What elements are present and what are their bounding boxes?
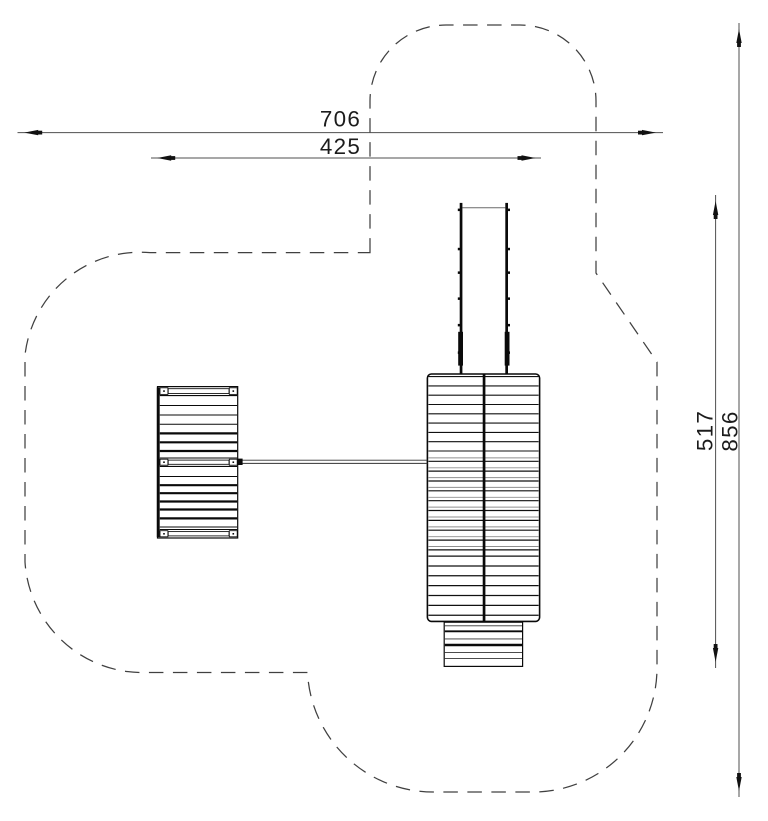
svg-text:856: 856 [717, 410, 742, 451]
svg-text:425: 425 [320, 134, 361, 159]
svg-text:706: 706 [320, 107, 361, 132]
svg-text:517: 517 [693, 410, 718, 451]
